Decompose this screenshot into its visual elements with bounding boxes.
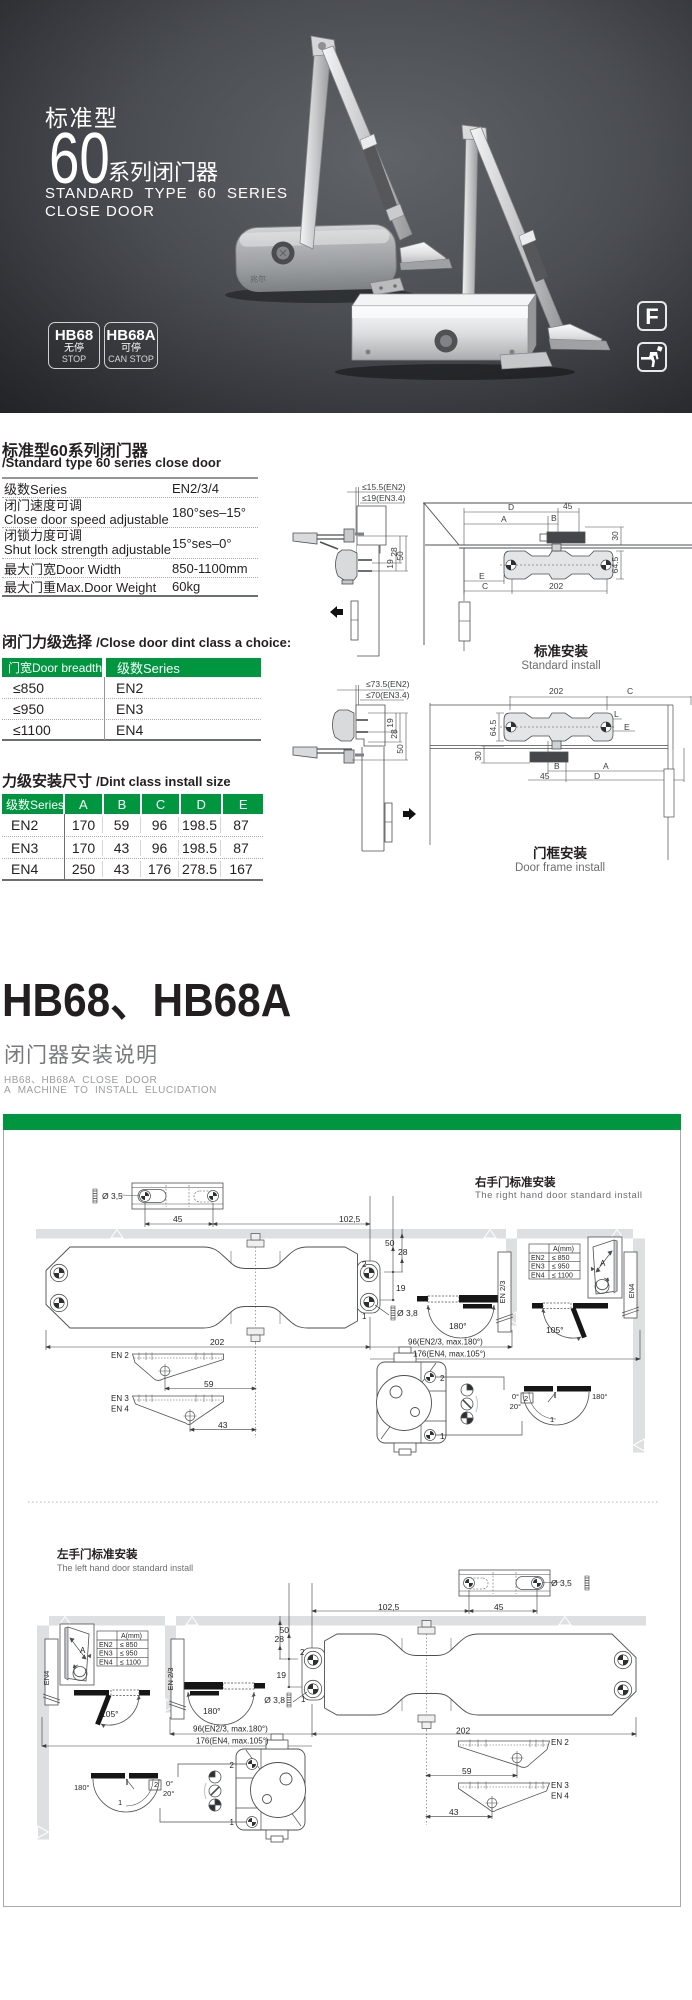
svg-text:20°: 20° [510,1402,521,1411]
svg-text:EN 3: EN 3 [111,1394,129,1403]
svg-text:0°: 0° [512,1392,519,1401]
svg-text:A: A [80,1646,86,1655]
svg-text:2: 2 [524,1394,528,1403]
svg-text:Ø 3,8: Ø 3,8 [264,1695,285,1705]
svg-text:1: 1 [230,1818,235,1827]
svg-text:Standard install: Standard install [521,660,600,672]
svg-text:门框安装: 门框安装 [533,845,587,861]
svg-text:20°: 20° [163,1789,174,1798]
svg-text:≤ 950: ≤ 950 [552,1264,570,1271]
svg-text:EN 4: EN 4 [111,1405,129,1414]
svg-text:28: 28 [389,547,399,557]
svg-text:≤19(EN3.4): ≤19(EN3.4) [362,493,406,503]
svg-text:64.5: 64.5 [610,556,620,573]
svg-text:L: L [614,709,619,719]
svg-text:≤73.5(EN2): ≤73.5(EN2) [366,679,410,689]
svg-text:左手门标准安装: 左手门标准安装 [56,1547,138,1561]
svg-text:105°: 105° [101,1709,119,1719]
svg-text:2: 2 [154,1780,158,1789]
svg-text:EN3: EN3 [531,1264,545,1271]
svg-text:59: 59 [204,1379,214,1389]
svg-text:45: 45 [173,1214,183,1224]
svg-text:The left hand door standard in: The left hand door standard install [57,1563,193,1573]
svg-text:102,5: 102,5 [378,1602,400,1612]
svg-text:Ø 3,5: Ø 3,5 [551,1578,572,1588]
svg-text:180°: 180° [74,1783,90,1792]
svg-text:EN 2: EN 2 [551,1738,569,1747]
svg-text:1: 1 [362,1312,367,1321]
svg-text:1: 1 [301,1695,306,1704]
svg-text:D: D [508,502,514,512]
svg-text:C: C [627,686,633,696]
svg-text:50: 50 [395,744,405,754]
svg-text:28: 28 [398,1247,408,1257]
svg-text:≤15.5(EN2): ≤15.5(EN2) [362,482,406,492]
svg-text:45: 45 [540,771,550,781]
svg-text:EN4: EN4 [627,1284,636,1299]
svg-text:B: B [554,761,560,771]
svg-text:105°: 105° [546,1325,564,1335]
svg-text:A: A [603,761,609,771]
svg-text:≤ 950: ≤ 950 [120,1651,138,1658]
svg-text:19: 19 [277,1670,287,1680]
svg-text:2: 2 [362,1260,367,1269]
svg-text:E: E [479,571,485,581]
svg-text:2: 2 [300,1648,305,1657]
svg-text:The right hand door standard i: The right hand door standard install [475,1190,642,1201]
svg-text:EN 3: EN 3 [551,1781,569,1790]
svg-text:EN4: EN4 [99,1659,113,1666]
svg-text:A: A [501,514,507,524]
svg-text:Ø 3,8: Ø 3,8 [397,1308,418,1318]
svg-text:≤ 1100: ≤ 1100 [120,1659,141,1666]
svg-text:28: 28 [275,1634,285,1644]
svg-text:43: 43 [449,1807,459,1817]
svg-text:EN 2/3: EN 2/3 [498,1281,507,1304]
svg-text:45: 45 [563,501,573,511]
svg-text:19: 19 [385,559,395,569]
svg-text:180°: 180° [592,1392,608,1401]
svg-text:176(EN4, max.105°): 176(EN4, max.105°) [413,1350,486,1359]
svg-text:45: 45 [494,1602,504,1612]
svg-text:64.5: 64.5 [488,719,498,736]
svg-text:0°: 0° [166,1779,173,1788]
svg-text:59: 59 [462,1766,472,1776]
svg-text:EN 2/3: EN 2/3 [166,1668,175,1691]
svg-text:EN2: EN2 [99,1642,113,1649]
svg-text:EN 4: EN 4 [551,1792,569,1801]
svg-text:1: 1 [550,1415,554,1424]
svg-text:2: 2 [230,1761,235,1770]
svg-text:202: 202 [210,1337,224,1347]
svg-text:≤ 850: ≤ 850 [552,1255,570,1262]
svg-text:≤ 1100: ≤ 1100 [552,1272,573,1279]
svg-text:≤70(EN3.4): ≤70(EN3.4) [366,690,410,700]
svg-text:E: E [624,722,630,732]
svg-text:202: 202 [456,1726,470,1736]
svg-text:EN2: EN2 [531,1255,545,1262]
svg-text:202: 202 [549,581,563,591]
svg-text:1: 1 [118,1798,122,1807]
svg-text:右手门标准安装: 右手门标准安装 [474,1175,556,1189]
svg-text:EN4: EN4 [42,1671,51,1686]
svg-text:兆尔: 兆尔 [250,274,266,285]
svg-text:180°: 180° [449,1321,467,1331]
svg-text:Door frame install: Door frame install [515,862,605,874]
svg-text:30: 30 [473,751,483,761]
svg-text:B: B [551,513,557,523]
svg-text:30: 30 [610,531,620,541]
svg-text:标准安装: 标准安装 [533,643,588,659]
svg-text:96(EN2/3, max.180°): 96(EN2/3, max.180°) [193,1725,268,1734]
svg-text:96(EN2/3, max.180°): 96(EN2/3, max.180°) [408,1338,483,1347]
svg-text:EN 2: EN 2 [111,1351,129,1360]
svg-text:A: A [600,1259,606,1268]
svg-text:A(mm): A(mm) [121,1633,142,1640]
svg-text:19: 19 [396,1283,406,1293]
svg-text:43: 43 [218,1420,228,1430]
svg-text:C: C [482,581,488,591]
svg-text:EN4: EN4 [531,1272,545,1279]
svg-text:180°: 180° [203,1706,221,1716]
svg-text:A(mm): A(mm) [553,1246,574,1253]
svg-text:≤ 850: ≤ 850 [120,1642,138,1649]
svg-text:19: 19 [385,718,395,728]
svg-text:202: 202 [549,686,563,696]
svg-text:176(EN4, max.105°): 176(EN4, max.105°) [196,1737,269,1746]
svg-text:102,5: 102,5 [339,1214,361,1224]
svg-text:D: D [594,771,600,781]
svg-text:50: 50 [385,1238,395,1248]
svg-text:EN3: EN3 [99,1651,113,1658]
svg-text:28: 28 [389,729,399,739]
svg-text:Ø 3,5: Ø 3,5 [102,1191,123,1201]
svg-text:1: 1 [440,1432,445,1441]
svg-text:2: 2 [440,1374,445,1383]
